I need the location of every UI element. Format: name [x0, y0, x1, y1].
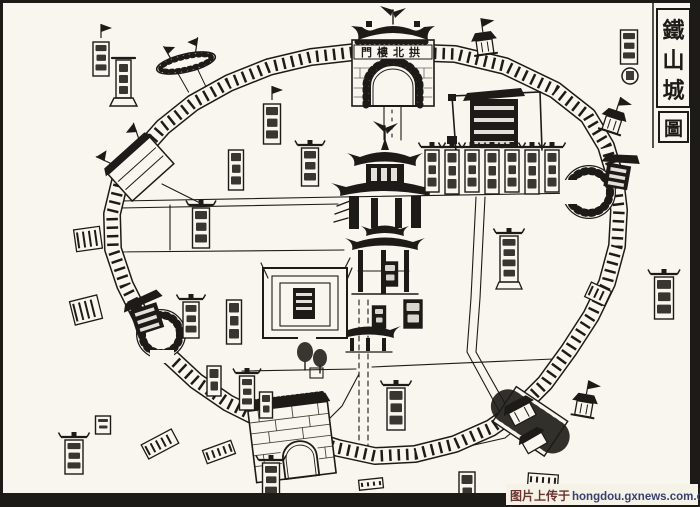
building-tablet: [260, 392, 273, 418]
right-border-band: [690, 2, 698, 505]
north-gate-roof-ornament: [366, 21, 372, 27]
title-seal-char: 圖: [664, 118, 683, 140]
building-tablet: [373, 306, 386, 328]
title-char-3: 城: [662, 78, 684, 104]
walled-compound: [261, 263, 347, 342]
north-gate-arch: [370, 65, 416, 106]
north-gate-label: 門樓北拱: [361, 45, 425, 59]
title-char-2: 山: [662, 48, 684, 74]
watermark: 图片上传于 hongdou.gxnews.com.cn: [506, 484, 700, 505]
watermark-url: hongdou.gxnews.com.cn: [572, 491, 700, 503]
building-tablet: [207, 366, 221, 396]
woodblock-city-map: 門樓北拱: [0, 0, 700, 507]
west-barbican-opening: [150, 350, 174, 363]
watermark-prefix: 图片上传于: [510, 488, 570, 503]
wall-turret: [74, 226, 103, 251]
building-tablet: [383, 262, 398, 286]
map-canvas: 門樓北拱: [0, 0, 700, 507]
south-gate: [244, 392, 339, 483]
compound-gate-opening: [298, 334, 316, 342]
title-cartouche: 鐵 山 城 圖: [657, 9, 690, 142]
building-tablet: [621, 30, 638, 64]
wall-turret: [359, 478, 384, 490]
title-char-1: 鐵: [662, 18, 684, 44]
building-tablet: [227, 300, 242, 344]
compound-hall: [293, 288, 315, 319]
building-tablet: [404, 300, 422, 328]
building-tablet: [229, 150, 244, 190]
east-barbican-opening: [560, 180, 578, 204]
north-gate-roof-ornament: [414, 21, 420, 27]
building-tablet: [96, 416, 111, 434]
